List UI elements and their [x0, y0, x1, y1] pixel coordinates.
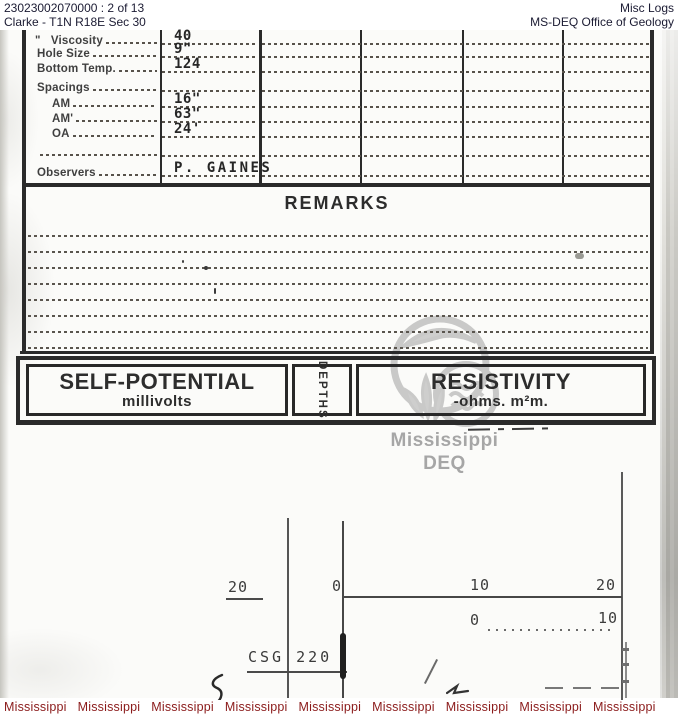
dotted-leader [73, 135, 157, 137]
ink-smudge [575, 253, 584, 259]
remarks-line [28, 267, 648, 269]
self-potential-title: SELF-POTENTIAL [59, 370, 254, 394]
resistivity-scale2-dotted-line [488, 629, 612, 631]
resistivity-scale-line [343, 596, 622, 598]
paper-crease-tick [622, 663, 629, 666]
form-row-am: AM 16" [22, 93, 652, 108]
dotted-line [262, 162, 650, 177]
resistivity-scale1-mid: 10 [470, 576, 490, 594]
document-id: 23023002070000 : 2 of 13 [4, 2, 146, 16]
table-border-bottom [22, 183, 654, 187]
document-office: MS-DEQ Office of Geology [530, 16, 674, 30]
pen-zigzag [446, 682, 470, 698]
footer-watermark-item: Mississippi [78, 700, 141, 714]
field-label: Observers [26, 167, 96, 179]
footer-watermark-item: Mississippi [299, 700, 362, 714]
form-row-bottom-temp: Bottom Temp. 124 [22, 58, 652, 73]
sp-scale-underline [226, 598, 263, 600]
band-border-bottom [16, 420, 656, 425]
dotted-leader [76, 120, 157, 122]
dotted-leader [99, 174, 157, 176]
casing-annotation: CSG 220 [248, 648, 332, 666]
watermark-text-line2: DEQ [357, 453, 532, 475]
resistivity-title: RESISTIVITY [431, 370, 571, 394]
field-value: 16" [174, 91, 201, 107]
resistivity-scale2-right: 10 [598, 609, 618, 627]
band-border-top [16, 356, 656, 360]
field-value: P. GAINES [174, 160, 272, 176]
remarks-line [28, 315, 648, 317]
resistivity-units: -ohms. m²m. [454, 394, 549, 410]
header-right: Misc Logs MS-DEQ Office of Geology [530, 2, 674, 29]
band-border-right [652, 356, 656, 425]
depths-title: DEPTHS [316, 361, 328, 420]
remarks-line [28, 251, 648, 253]
ink-speck [204, 266, 208, 270]
footer-watermark-item: Mississippi [593, 700, 656, 714]
document-category: Misc Logs [530, 2, 674, 16]
sp-scale-label: 20 [228, 578, 248, 596]
remarks-line [28, 347, 648, 349]
form-row-am-prime: AM' 63" [22, 108, 652, 123]
field-value: 124 [174, 56, 201, 72]
paper-crease-tick [622, 680, 629, 683]
resistivity-scale1-left: 0 [332, 577, 342, 595]
dotted-line [262, 93, 650, 108]
footer-watermark-item: Mississippi [151, 700, 214, 714]
footer-watermark-item: Mississippi [519, 700, 582, 714]
band-border-left [16, 356, 20, 425]
field-label: OA [26, 128, 70, 140]
footer-watermark-item: Mississippi [4, 700, 67, 714]
remarks-line [28, 235, 648, 237]
remarks-line [28, 299, 648, 301]
paper-edge-right [660, 30, 678, 698]
pen-dashes [545, 687, 623, 689]
form-row-observers: Observers P. GAINES [22, 162, 652, 177]
dotted-leader [93, 89, 157, 91]
self-potential-units: millivolts [122, 394, 192, 410]
viewer-header: 23023002070000 : 2 of 13 Clarke - T1N R1… [4, 2, 674, 29]
form-row-oa: OA 24' [22, 123, 652, 138]
watermark-text-line1: Mississippi [357, 430, 532, 452]
paper-crease-tick [622, 648, 629, 651]
dotted-leader [40, 154, 157, 156]
field-value: 63" [174, 106, 201, 122]
dotted-leader [73, 105, 157, 107]
footer-watermark: Mississippi Mississippi Mississippi Miss… [4, 700, 656, 714]
scanned-document: " Viscosity 40 Hole Size 9" Bottom Temp.… [0, 30, 678, 698]
casing-underline [247, 671, 347, 673]
self-potential-header-cell: SELF-POTENTIAL millivolts [26, 364, 288, 416]
form-row-blank [22, 142, 652, 157]
resistivity-scale1-right: 20 [596, 576, 616, 594]
dotted-line [262, 142, 650, 157]
field-value: 24' [174, 121, 201, 137]
field-value: 9" [174, 41, 192, 57]
form-row-hole-size: Hole Size 9" [22, 43, 652, 58]
remarks-border-bottom [20, 351, 654, 354]
dotted-line [262, 108, 650, 123]
ink-blob [340, 633, 346, 679]
remarks-line [28, 331, 648, 333]
resistivity-header-cell: RESISTIVITY -ohms. m²m. [356, 364, 646, 416]
dotted-line [262, 58, 650, 73]
resistivity-scale2-left: 0 [470, 611, 480, 629]
header-left: 23023002070000 : 2 of 13 Clarke - T1N R1… [4, 2, 146, 29]
form-row-spacings: Spacings [22, 77, 652, 92]
dotted-line [262, 43, 650, 58]
depths-header-cell: DEPTHS [292, 364, 352, 416]
footer-watermark-item: Mississippi [372, 700, 435, 714]
dotted-line [262, 77, 650, 92]
dotted-leader [93, 55, 157, 57]
pen-slash [424, 659, 438, 684]
remarks-line [28, 283, 648, 285]
field-label: Bottom Temp. [26, 63, 116, 75]
ink-speck [214, 288, 216, 294]
dotted-line [262, 123, 650, 138]
dotted-leader [119, 70, 157, 72]
log-viewer-page: 23023002070000 : 2 of 13 Clarke - T1N R1… [0, 0, 678, 715]
ink-speck [182, 260, 184, 263]
paper-edge-left [0, 30, 9, 698]
footer-watermark-item: Mississippi [446, 700, 509, 714]
footer-watermark-item: Mississippi [225, 700, 288, 714]
document-location: Clarke - T1N R18E Sec 30 [4, 16, 146, 30]
remarks-title: REMARKS [22, 193, 652, 214]
